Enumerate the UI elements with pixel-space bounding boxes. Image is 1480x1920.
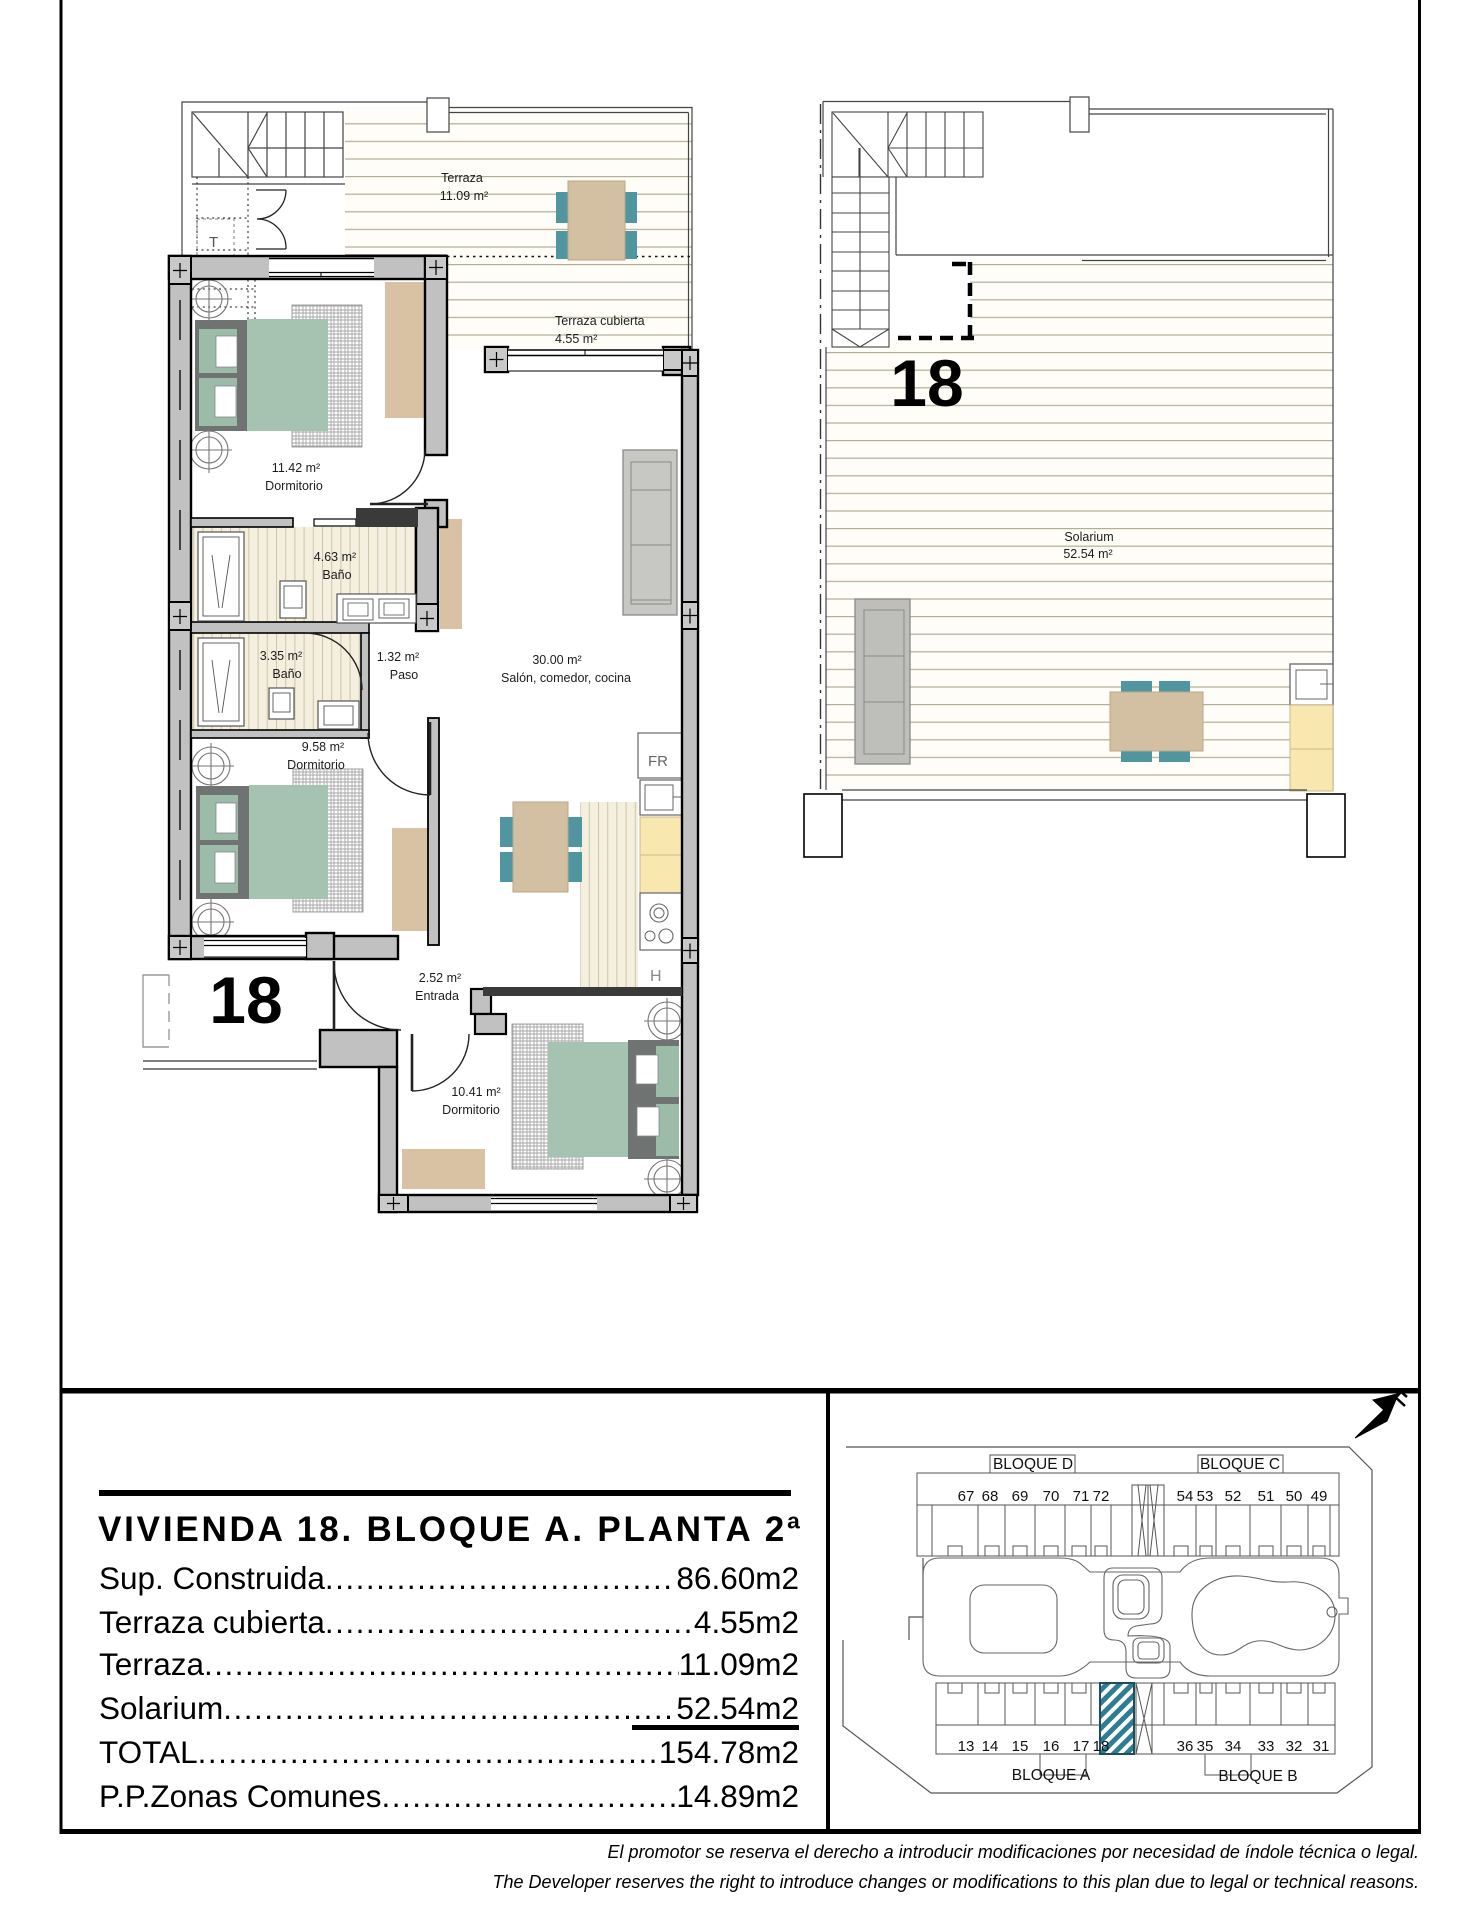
svg-text:Baño: Baño xyxy=(322,568,351,582)
svg-text:32: 32 xyxy=(1286,1738,1303,1755)
svg-text:3.35 m²: 3.35 m² xyxy=(260,649,302,663)
svg-text:H: H xyxy=(650,968,662,985)
svg-text:15: 15 xyxy=(1012,1738,1029,1755)
svg-text:72: 72 xyxy=(1093,1488,1110,1505)
svg-text:Paso: Paso xyxy=(390,668,419,682)
svg-text:Dormitorio: Dormitorio xyxy=(265,479,323,493)
svg-text:BLOQUE B: BLOQUE B xyxy=(1218,1768,1297,1785)
svg-text:70: 70 xyxy=(1043,1488,1060,1505)
svg-text:30.00 m²: 30.00 m² xyxy=(532,653,581,667)
svg-text:68: 68 xyxy=(982,1488,999,1505)
svg-text:BLOQUE D: BLOQUE D xyxy=(993,1456,1073,1473)
svg-text:Entrada: Entrada xyxy=(415,989,459,1003)
svg-text:Solarium: Solarium xyxy=(1064,530,1113,544)
svg-text:49: 49 xyxy=(1311,1488,1328,1505)
svg-text:9.58 m²: 9.58 m² xyxy=(302,740,344,754)
svg-text:2.52 m²: 2.52 m² xyxy=(419,971,461,985)
svg-text:11.09 m²: 11.09 m² xyxy=(440,189,488,203)
svg-text:35: 35 xyxy=(1197,1738,1214,1755)
svg-text:T: T xyxy=(209,234,218,251)
svg-text:36: 36 xyxy=(1177,1738,1194,1755)
svg-text:1.32 m²: 1.32 m² xyxy=(377,650,419,664)
svg-text:71: 71 xyxy=(1073,1488,1090,1505)
svg-text:54: 54 xyxy=(1177,1488,1194,1505)
svg-text:BLOQUE C: BLOQUE C xyxy=(1200,1456,1280,1473)
svg-text:16: 16 xyxy=(1043,1738,1060,1755)
svg-text:50: 50 xyxy=(1286,1488,1303,1505)
svg-text:4.63 m²: 4.63 m² xyxy=(314,550,356,564)
svg-text:Baño: Baño xyxy=(272,667,301,681)
svg-text:11.42 m²: 11.42 m² xyxy=(272,461,320,475)
svg-text:Dormitorio: Dormitorio xyxy=(287,758,345,772)
svg-text:10.41 m²: 10.41 m² xyxy=(451,1085,500,1099)
svg-text:31: 31 xyxy=(1313,1738,1330,1755)
svg-text:Terraza cubierta: Terraza cubierta xyxy=(555,314,645,328)
svg-text:4.55 m²: 4.55 m² xyxy=(555,332,597,346)
svg-text:BLOQUE A: BLOQUE A xyxy=(1012,1767,1091,1784)
svg-text:18: 18 xyxy=(890,346,963,420)
svg-text:69: 69 xyxy=(1012,1488,1029,1505)
svg-text:14: 14 xyxy=(982,1738,999,1755)
svg-text:51: 51 xyxy=(1258,1488,1275,1505)
svg-text:Terraza: Terraza xyxy=(441,171,483,185)
svg-text:67: 67 xyxy=(958,1488,975,1505)
svg-text:33: 33 xyxy=(1258,1738,1275,1755)
svg-text:18: 18 xyxy=(1093,1738,1110,1755)
svg-text:52.54 m²: 52.54 m² xyxy=(1063,547,1112,561)
svg-text:Dormitorio: Dormitorio xyxy=(442,1103,500,1117)
svg-text:13: 13 xyxy=(958,1738,975,1755)
svg-text:53: 53 xyxy=(1197,1488,1214,1505)
svg-text:17: 17 xyxy=(1073,1738,1090,1755)
svg-text:52: 52 xyxy=(1225,1488,1242,1505)
svg-text:18: 18 xyxy=(209,963,282,1037)
svg-text:Salón, comedor, cocina: Salón, comedor, cocina xyxy=(501,671,631,685)
svg-text:FR: FR xyxy=(648,753,668,770)
svg-text:34: 34 xyxy=(1225,1738,1242,1755)
